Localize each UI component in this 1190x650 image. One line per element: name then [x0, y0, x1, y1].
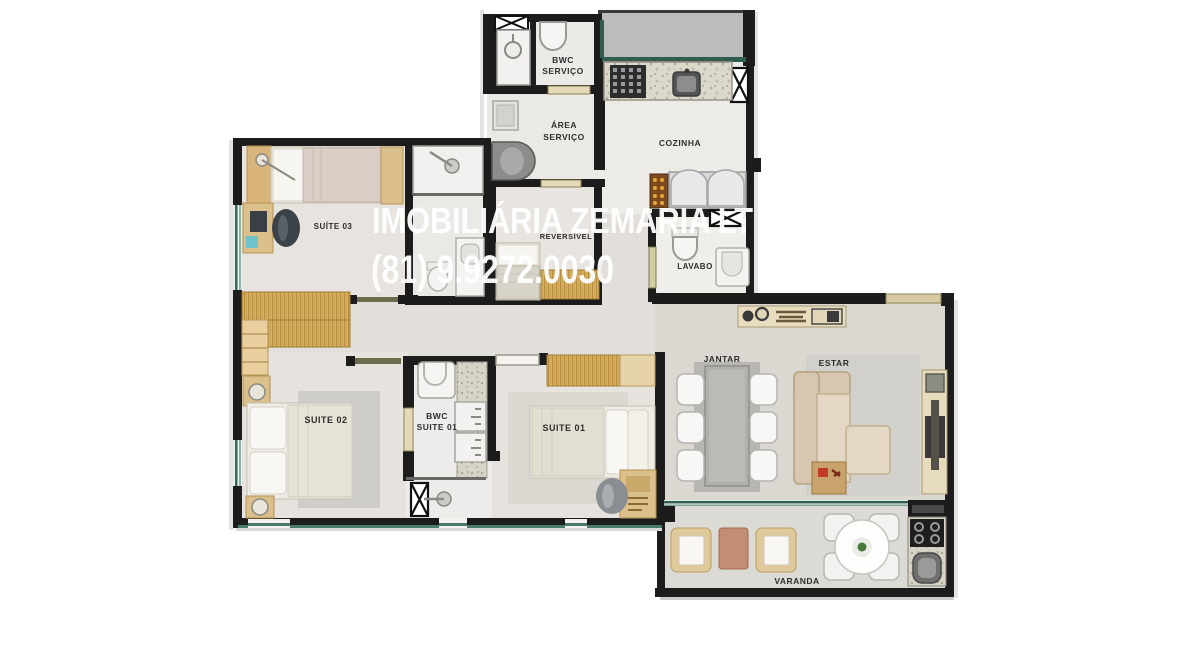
svg-text:SUITE 01: SUITE 01	[417, 422, 458, 432]
svg-text:BWC: BWC	[426, 411, 448, 421]
svg-text:IMOBILIÁRIA ZEMARIA LT: IMOBILIÁRIA ZEMARIA LT	[372, 200, 753, 241]
svg-text:BWC: BWC	[552, 55, 574, 65]
svg-text:SUÍTE 03: SUÍTE 03	[314, 222, 353, 231]
svg-text:(81) 9.9272.0030: (81) 9.9272.0030	[371, 248, 614, 292]
svg-text:SUITE 01: SUITE 01	[542, 423, 585, 433]
svg-text:COZINHA: COZINHA	[659, 138, 701, 148]
svg-text:SERVIÇO: SERVIÇO	[543, 132, 585, 142]
svg-text:LAVABO: LAVABO	[677, 262, 713, 271]
svg-text:SUITE 02: SUITE 02	[304, 415, 347, 425]
svg-text:JANTAR: JANTAR	[704, 354, 741, 364]
svg-text:ESTAR: ESTAR	[819, 358, 850, 368]
svg-text:VARANDA: VARANDA	[774, 576, 819, 586]
svg-text:ÁREA: ÁREA	[551, 120, 577, 130]
svg-text:SERVIÇO: SERVIÇO	[542, 66, 584, 76]
